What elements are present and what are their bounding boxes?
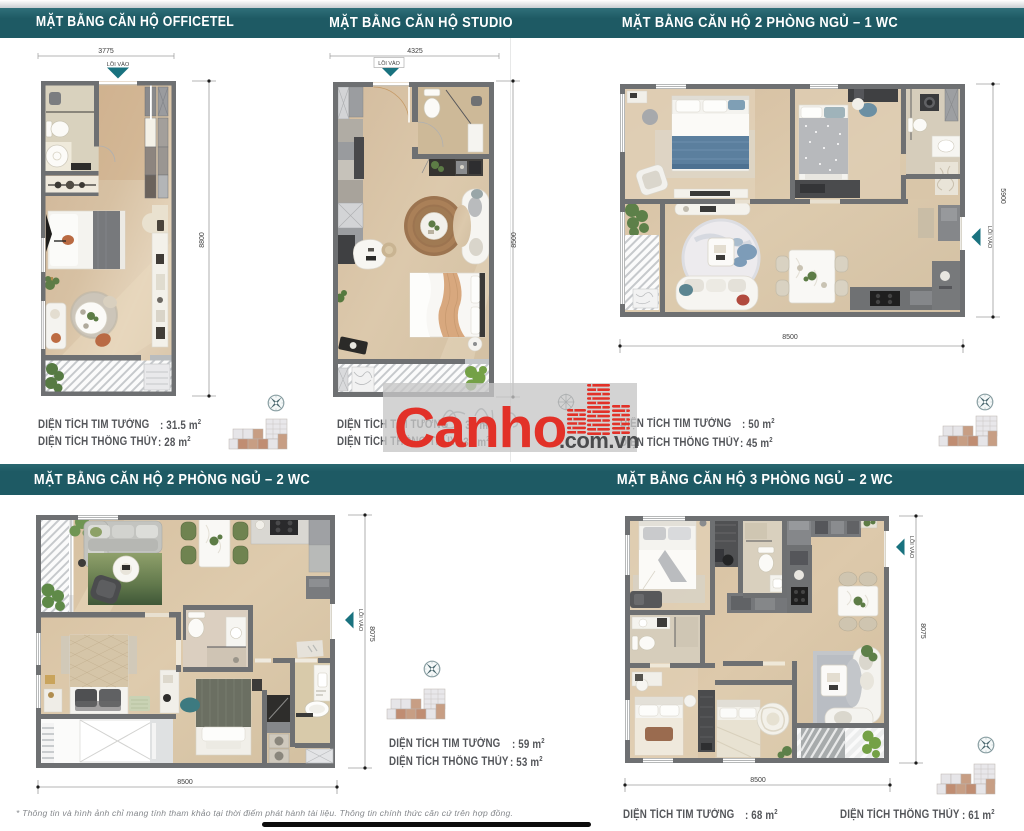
svg-text:LỒI VÀO: LỒI VÀO <box>378 60 400 67</box>
svg-text:LỒI VÀO: LỒI VÀO <box>908 536 915 559</box>
svg-text:8075: 8075 <box>919 623 926 639</box>
svg-text:8800: 8800 <box>199 232 206 248</box>
svg-text:8500: 8500 <box>177 779 193 786</box>
svg-text:3775: 3775 <box>98 48 114 55</box>
svg-text:8500: 8500 <box>511 232 518 248</box>
svg-text:8500: 8500 <box>750 777 766 784</box>
svg-text:4325: 4325 <box>407 48 423 55</box>
svg-text:LỒI VÀO: LỒI VÀO <box>357 609 364 632</box>
svg-text:5900: 5900 <box>999 188 1006 204</box>
svg-text:8500: 8500 <box>782 334 798 341</box>
svg-text:LỒI VÀO: LỒI VÀO <box>986 226 993 249</box>
svg-text:LỒI VÀO: LỒI VÀO <box>107 61 130 68</box>
svg-text:8075: 8075 <box>368 626 375 642</box>
svg-text:Canho: Canho <box>394 396 566 455</box>
